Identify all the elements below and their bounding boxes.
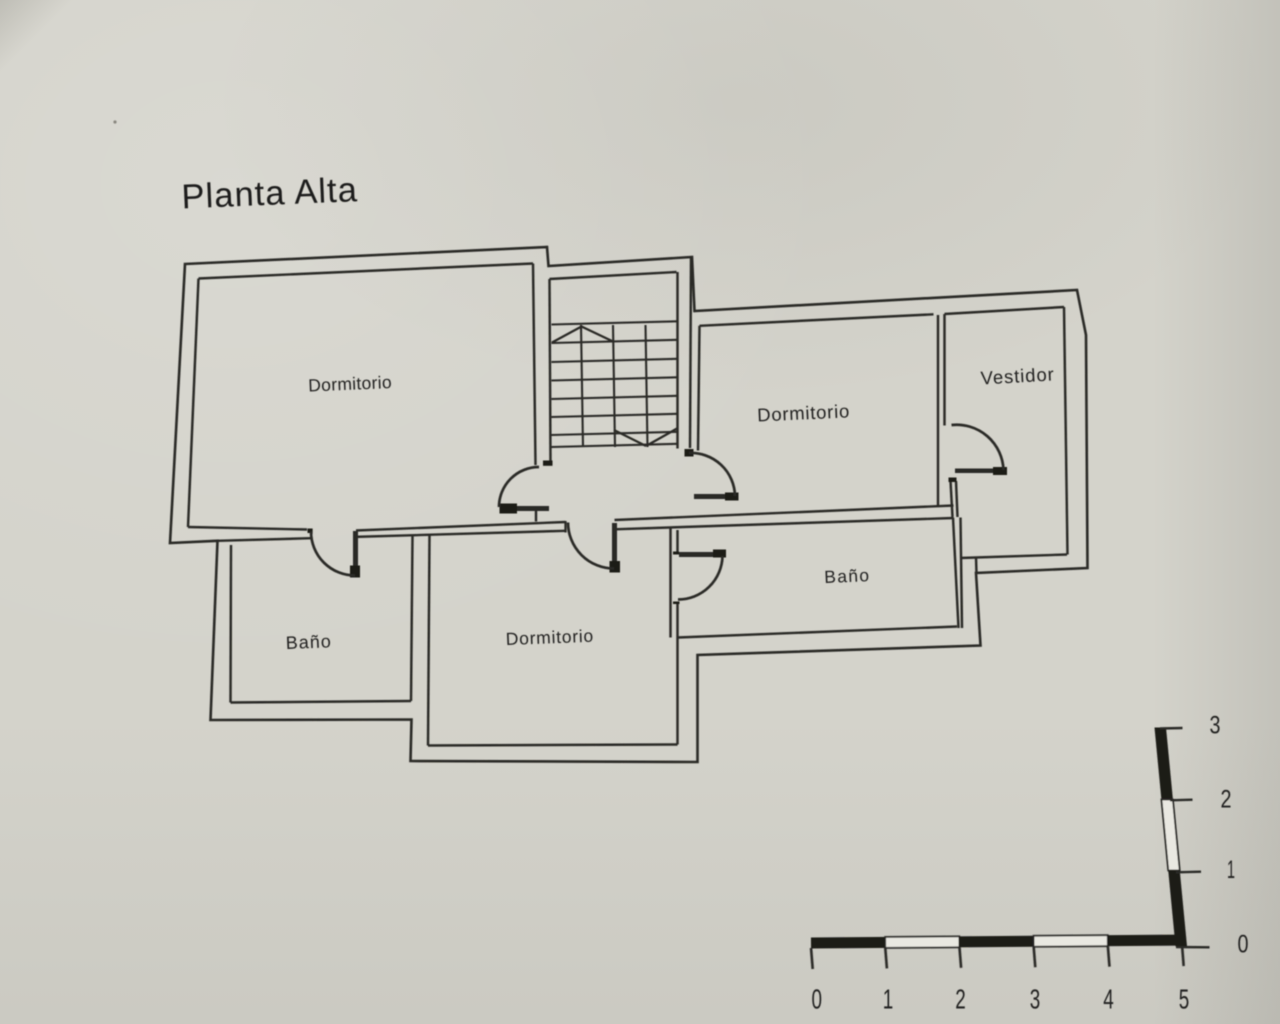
svg-text:5: 5 [1179, 984, 1190, 1015]
svg-text:Dormitorio: Dormitorio [505, 626, 594, 649]
svg-text:Baño: Baño [285, 631, 332, 653]
svg-text:1: 1 [883, 984, 894, 1015]
svg-text:2: 2 [1221, 786, 1232, 814]
svg-text:2: 2 [955, 984, 966, 1015]
svg-text:Vestidor: Vestidor [980, 363, 1055, 388]
svg-text:1: 1 [1227, 856, 1235, 884]
svg-text:3: 3 [1030, 984, 1041, 1015]
svg-text:3: 3 [1210, 712, 1221, 740]
svg-text:Planta Alta: Planta Alta [181, 171, 359, 216]
svg-text:0: 0 [1238, 931, 1249, 959]
svg-text:0: 0 [811, 984, 822, 1015]
svg-text:4: 4 [1103, 984, 1114, 1015]
svg-text:Baño: Baño [824, 565, 871, 587]
svg-text:Dormitorio: Dormitorio [308, 372, 392, 395]
svg-text:Dormitorio: Dormitorio [757, 400, 851, 425]
